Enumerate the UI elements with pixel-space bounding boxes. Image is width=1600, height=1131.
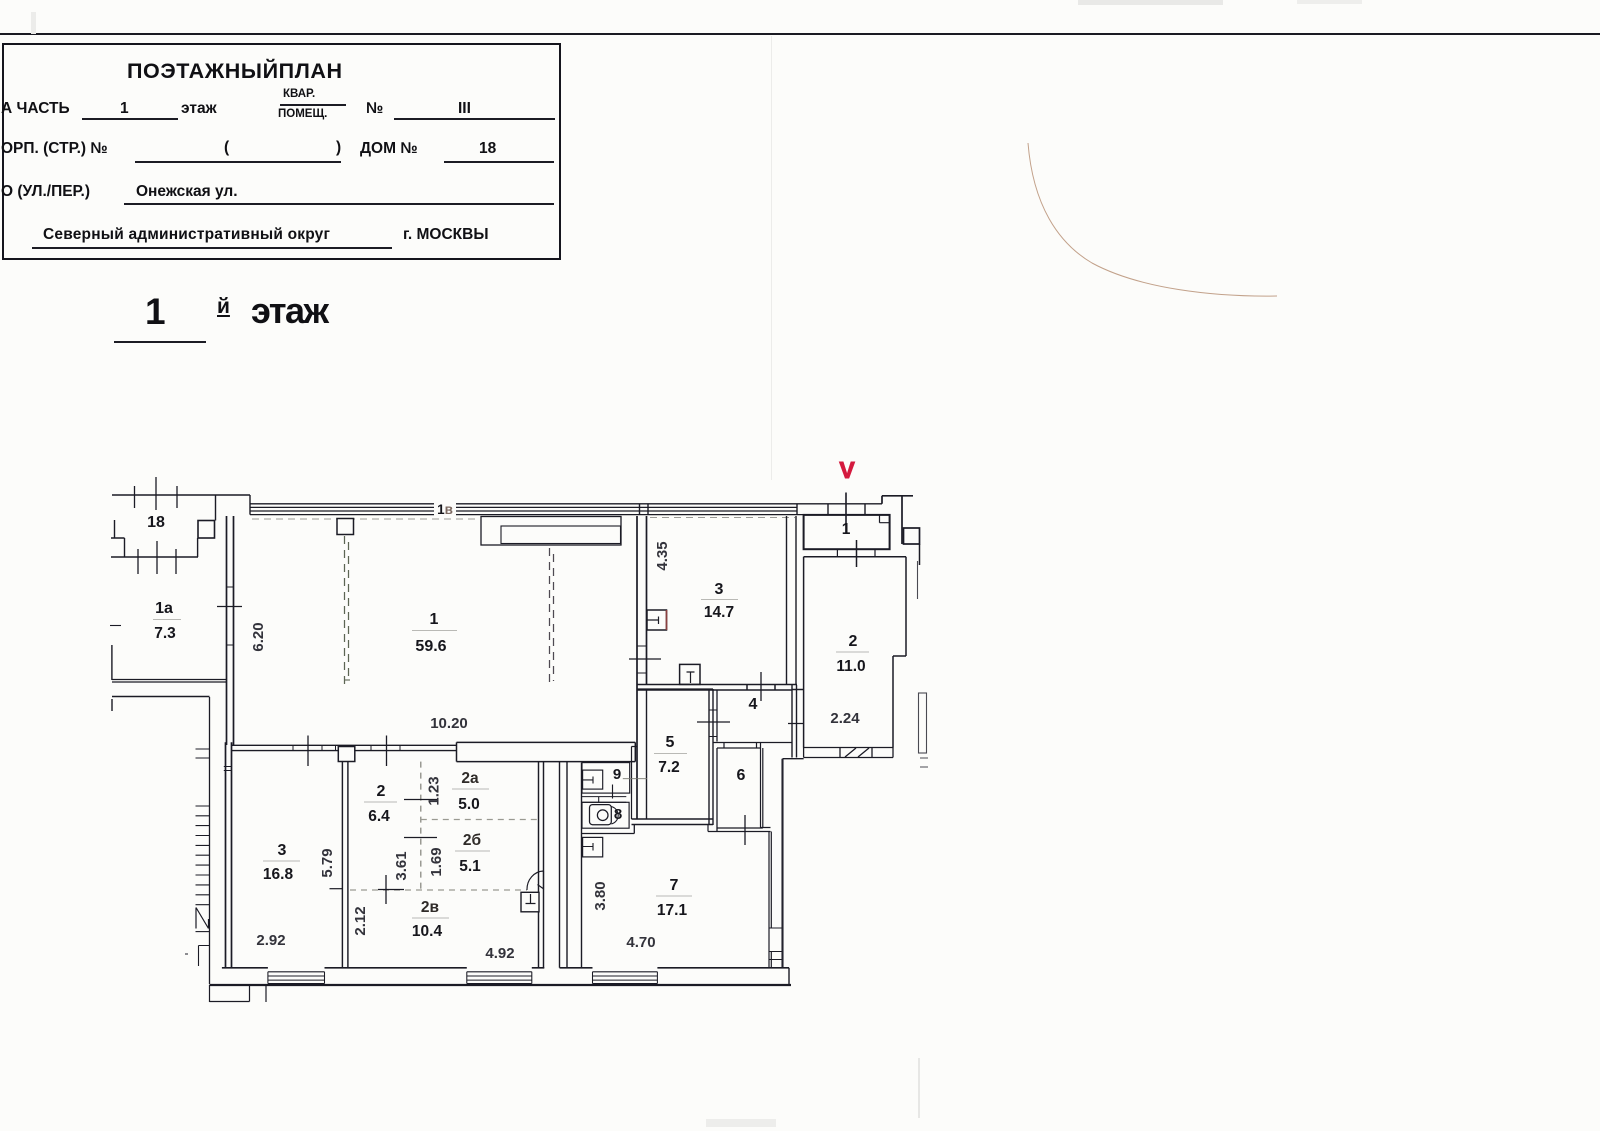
svg-text:2: 2: [377, 783, 386, 800]
svg-text:17.1: 17.1: [657, 902, 688, 919]
svg-text:1.69: 1.69: [428, 847, 445, 876]
svg-text:4.92: 4.92: [485, 945, 514, 962]
svg-text:1: 1: [430, 611, 439, 628]
svg-text:5.79: 5.79: [319, 848, 336, 877]
svg-text:3.61: 3.61: [393, 851, 410, 880]
svg-text:6.20: 6.20: [250, 622, 267, 651]
svg-text:18: 18: [147, 514, 165, 531]
svg-text:1: 1: [842, 521, 851, 538]
svg-text:5.1: 5.1: [459, 858, 481, 875]
svg-text:7: 7: [670, 877, 679, 894]
svg-text:1.23: 1.23: [426, 776, 443, 805]
svg-text:10.20: 10.20: [430, 715, 468, 732]
svg-text:14.7: 14.7: [704, 604, 734, 621]
svg-text:2в: 2в: [421, 899, 439, 916]
svg-text:3: 3: [278, 842, 287, 859]
svg-text:4.35: 4.35: [654, 541, 671, 570]
svg-text:11.0: 11.0: [836, 658, 865, 675]
svg-text:2: 2: [849, 633, 858, 650]
svg-text:7.2: 7.2: [658, 759, 680, 776]
svg-text:4.70: 4.70: [626, 934, 655, 951]
svg-text:2.92: 2.92: [256, 932, 285, 949]
svg-text:5.0: 5.0: [458, 796, 480, 813]
svg-text:8: 8: [614, 806, 622, 823]
svg-text:3: 3: [715, 581, 724, 598]
svg-text:2.24: 2.24: [830, 710, 860, 727]
svg-text:5: 5: [666, 734, 675, 751]
svg-text:V: V: [839, 457, 855, 483]
svg-text:2.12: 2.12: [352, 906, 369, 935]
svg-text:6.4: 6.4: [368, 808, 390, 825]
svg-text:6: 6: [737, 767, 746, 784]
svg-text:1а: 1а: [155, 600, 173, 617]
svg-text:16.8: 16.8: [263, 866, 294, 883]
svg-text:2б: 2б: [463, 832, 481, 849]
svg-text:1в: 1в: [437, 502, 453, 517]
svg-text:10.4: 10.4: [412, 923, 443, 940]
svg-text:9: 9: [613, 766, 621, 783]
svg-text:59.6: 59.6: [415, 638, 446, 655]
svg-text:7.3: 7.3: [154, 625, 176, 642]
svg-text:3.80: 3.80: [592, 881, 609, 910]
svg-text:2а: 2а: [461, 770, 479, 787]
svg-text:4: 4: [749, 696, 758, 713]
